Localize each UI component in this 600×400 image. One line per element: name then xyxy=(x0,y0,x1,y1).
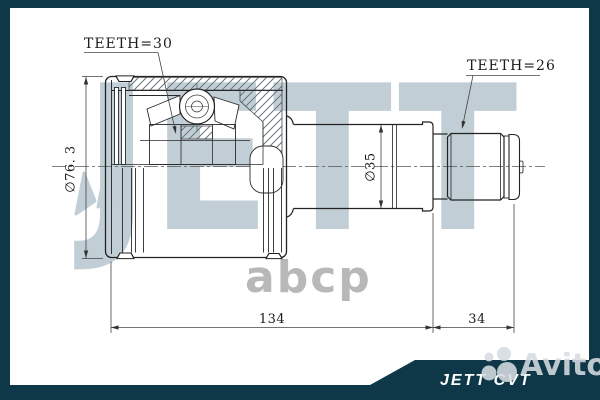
product-image: JETT abcp xyxy=(0,0,600,400)
shaft-diameter-label: ∅35 xyxy=(364,152,379,181)
ball-bearing xyxy=(180,89,215,124)
spline-length-label: 34 xyxy=(468,312,486,327)
avito-wordmark: Avito xyxy=(520,348,600,384)
outer-diameter-label: ∅76. 3 xyxy=(64,145,79,192)
dim-outer-diameter xyxy=(82,77,103,259)
avito-dots-icon xyxy=(478,344,518,388)
marketplace-watermark: Avito xyxy=(478,344,600,388)
dim-lengths xyxy=(111,204,514,333)
teeth-right-callout: TEETH=26 xyxy=(467,58,556,74)
body-length-label: 134 xyxy=(259,312,285,327)
teeth-left-callout: TEETH=30 xyxy=(84,36,173,52)
